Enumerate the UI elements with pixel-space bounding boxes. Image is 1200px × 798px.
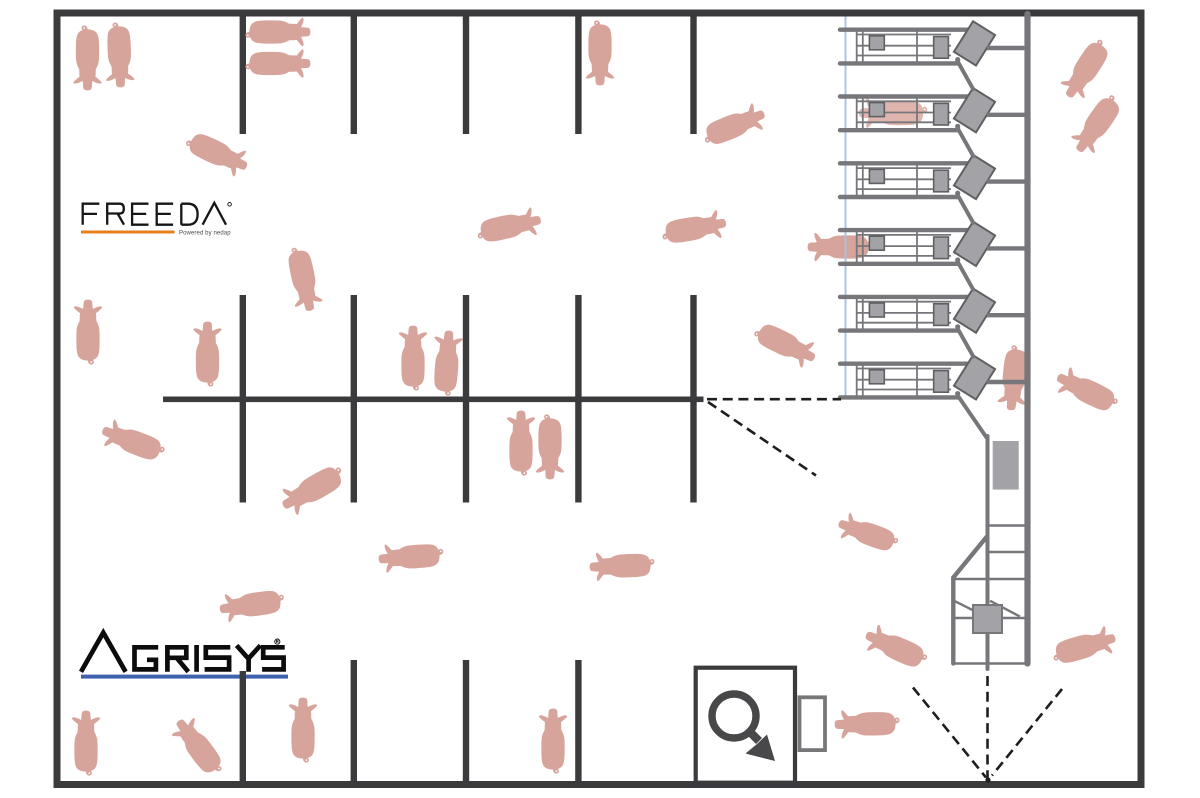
svg-text:Powered by nedap: Powered by nedap (179, 230, 231, 236)
